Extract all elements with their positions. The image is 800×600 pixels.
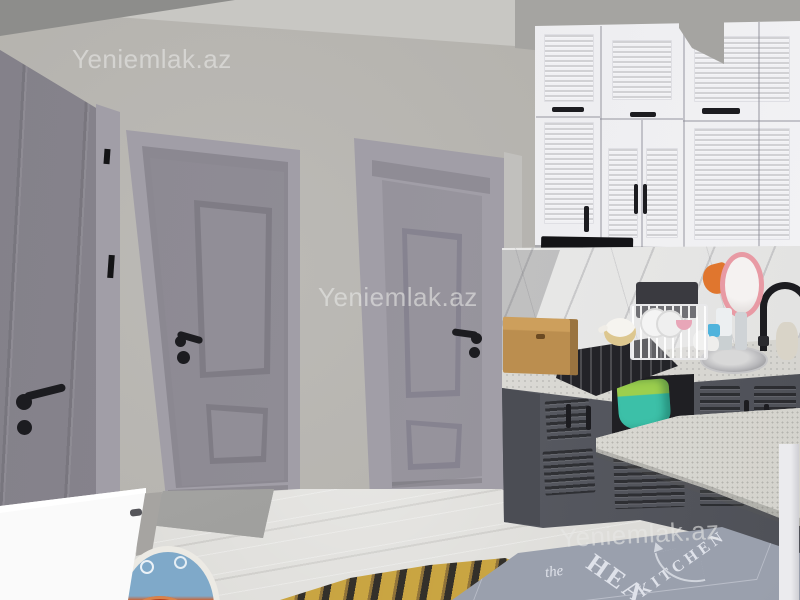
kids-mat-lion <box>132 596 188 600</box>
apartment-photo: the HEA KITCHEN Yeniemlak.az Yeniemlak.a… <box>0 0 800 600</box>
door-right-knob <box>469 347 480 358</box>
cabinet-divider-2 <box>683 22 685 252</box>
cabinet-louver-middle-right <box>646 148 678 238</box>
lower-handle-2 <box>586 406 591 430</box>
kitchen-rug-word-script: the <box>544 563 565 582</box>
watermark-top-left: Yeniemlak.az <box>72 44 232 75</box>
cabinet-louver-middle-top <box>612 40 672 100</box>
cabinet-louver-right-bottom <box>694 128 790 240</box>
cabinet-handle-2 <box>584 206 589 232</box>
door-left-handle-rose <box>16 394 32 410</box>
door-left-knob <box>17 420 32 435</box>
door-middle-handle-rose <box>175 336 186 347</box>
bread-box-knob <box>536 334 545 339</box>
cabinet-divider-6 <box>600 118 683 120</box>
lower-handle-1 <box>566 404 571 428</box>
kids-mat-moon <box>174 556 187 569</box>
cabinet-divider-5 <box>536 116 600 118</box>
kids-mat-cloud <box>140 560 154 574</box>
cabinet-divider-3 <box>758 22 760 252</box>
watermark-center: Yeniemlak.az <box>318 282 478 313</box>
cabinet-divider-1 <box>600 26 602 248</box>
lower-louver-2 <box>543 448 596 495</box>
cabinet-handle-5 <box>643 184 647 214</box>
cabinet-handle-4 <box>634 184 638 214</box>
gray-bottle <box>735 312 747 350</box>
cabinet-handle-3 <box>630 112 656 117</box>
dish-brush <box>776 322 798 360</box>
door-middle-knob <box>177 351 190 364</box>
cabinet-handle-1 <box>552 107 584 112</box>
cabinet-divider-7 <box>683 120 800 122</box>
cabinet-handle-6 <box>702 108 740 114</box>
teapot <box>604 318 636 346</box>
faucet-spout <box>758 336 769 346</box>
table-leg <box>779 444 799 600</box>
bread-box <box>503 317 578 376</box>
door-right-handle-rose <box>471 333 482 344</box>
cabinet-louver-left-top <box>544 34 594 102</box>
door-left-hinge-top <box>103 149 110 164</box>
